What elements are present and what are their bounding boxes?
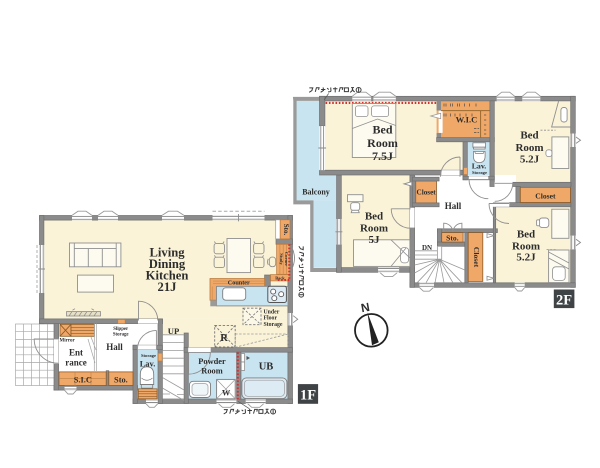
svg-text:Ent: Ent xyxy=(69,348,83,358)
svg-text:Hall: Hall xyxy=(445,201,462,211)
svg-text:Hall: Hall xyxy=(106,342,123,352)
svg-text:Corner: Corner xyxy=(284,252,289,266)
svg-text:S.I.C: S.I.C xyxy=(74,375,92,384)
svg-text:Room: Room xyxy=(360,223,388,235)
svg-text:Sto.: Sto. xyxy=(446,234,459,243)
svg-text:Closet: Closet xyxy=(417,189,437,197)
svg-text:W: W xyxy=(222,388,231,397)
svg-text:Under: Under xyxy=(264,309,280,315)
svg-text:Bed: Bed xyxy=(520,130,538,142)
svg-text:Counter: Counter xyxy=(228,280,250,287)
svg-text:5.2J: 5.2J xyxy=(520,154,540,166)
svg-text:Slipper: Slipper xyxy=(113,327,129,332)
svg-text:7.5J: 7.5J xyxy=(372,149,393,163)
svg-text:UP: UP xyxy=(168,326,179,336)
svg-text:Bed: Bed xyxy=(517,229,535,241)
svg-text:W.I.C: W.I.C xyxy=(456,115,478,125)
svg-text:Storage: Storage xyxy=(141,353,156,358)
svg-text:Study: Study xyxy=(279,253,284,265)
svg-text:Closet: Closet xyxy=(535,192,556,201)
svg-text:Floor: Floor xyxy=(264,316,278,322)
svg-text:Room: Room xyxy=(515,142,543,154)
svg-text:2F: 2F xyxy=(556,293,572,309)
svg-text:Balcony: Balcony xyxy=(302,188,330,197)
svg-text:5J: 5J xyxy=(369,234,381,246)
svg-text:Bed: Bed xyxy=(365,211,383,223)
svg-text:R: R xyxy=(220,333,228,344)
svg-text:Room: Room xyxy=(367,136,398,150)
svg-text:1F: 1F xyxy=(300,388,316,404)
svg-text:Storage: Storage xyxy=(472,170,487,175)
svg-text:rance: rance xyxy=(65,358,87,368)
svg-text:5.2J: 5.2J xyxy=(516,252,536,264)
svg-text:Storage: Storage xyxy=(264,322,283,328)
svg-text:Mirror: Mirror xyxy=(60,339,76,344)
svg-text:Bed: Bed xyxy=(372,122,392,136)
svg-text:N: N xyxy=(360,300,371,315)
svg-text:Powder: Powder xyxy=(198,357,226,366)
svg-text:Back: Back xyxy=(275,276,285,281)
svg-text:21J: 21J xyxy=(158,280,177,294)
svg-text:Sto.: Sto. xyxy=(282,224,290,236)
svg-text:Room: Room xyxy=(201,366,222,375)
svg-text:Closet: Closet xyxy=(472,247,481,268)
svg-text:Sto.: Sto. xyxy=(114,375,128,384)
svg-text:UB: UB xyxy=(259,362,274,373)
svg-text:Lav.: Lav. xyxy=(472,161,487,170)
svg-text:Storage: Storage xyxy=(113,332,129,337)
